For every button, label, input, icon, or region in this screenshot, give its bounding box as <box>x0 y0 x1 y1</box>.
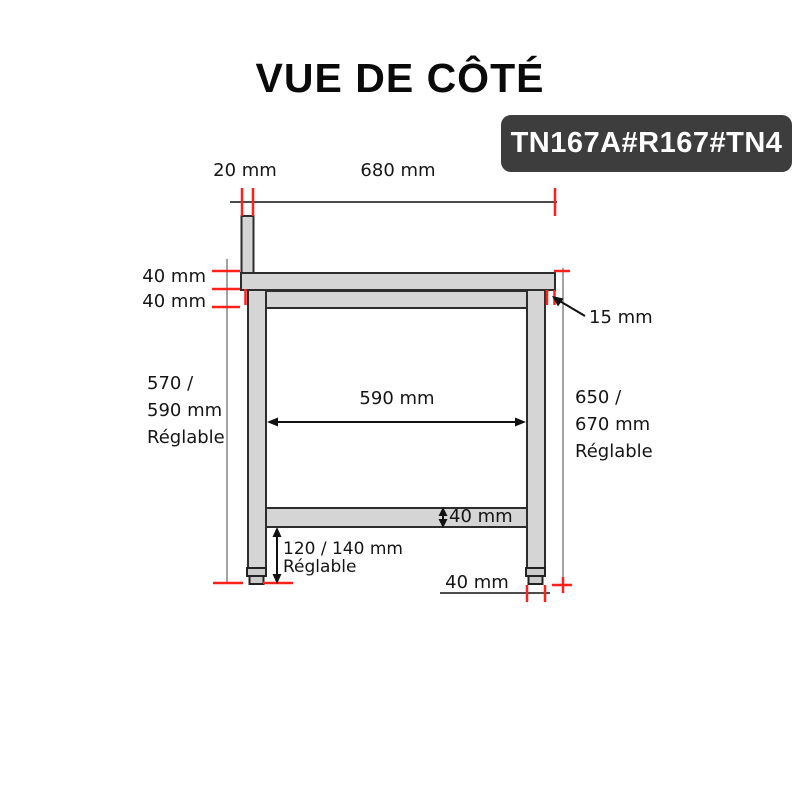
label-right-height-line1: 650 / <box>575 384 653 411</box>
inner-width-arrowhead-left <box>267 418 278 427</box>
left-leg-shape <box>248 290 266 568</box>
diagram-page: VUE DE CÔTÉ TN167A#R167#TN4 <box>0 0 800 800</box>
right-foot-collar-shape <box>526 568 545 576</box>
label-left-clearance-line2: 590 mm <box>147 397 225 424</box>
overhang-leader-line <box>558 300 585 316</box>
foot-height-arrowhead-up <box>273 527 282 537</box>
left-foot-pad-shape <box>250 576 264 584</box>
label-frame-height: 40 mm <box>138 291 206 313</box>
label-edge-overhang: 15 mm <box>589 307 653 329</box>
label-foot-width: 40 mm <box>437 572 517 594</box>
backsplash-shape <box>242 216 254 275</box>
left-foot-collar-shape <box>247 568 266 576</box>
label-foot-height: 120 / 140 mm Réglable <box>283 540 403 576</box>
label-left-clearance: 570 / 590 mm Réglable <box>147 370 225 451</box>
right-leg-shape <box>527 290 545 568</box>
label-foot-height-line1: 120 / 140 mm <box>283 540 403 558</box>
label-top-depth: 680 mm <box>356 160 440 182</box>
label-left-clearance-line3: Réglable <box>147 424 225 451</box>
label-right-height-line2: 670 mm <box>575 411 653 438</box>
underframe-shape <box>266 291 528 308</box>
label-foot-height-line2: Réglable <box>283 558 403 576</box>
inner-width-arrowhead-right <box>515 418 526 427</box>
label-top-thickness: 40 mm <box>138 266 206 288</box>
label-inner-width: 590 mm <box>354 388 440 410</box>
label-left-clearance-line1: 570 / <box>147 370 225 397</box>
tabletop-shape <box>241 273 555 290</box>
label-shelf-thickness: 40 mm <box>449 506 513 528</box>
label-right-height: 650 / 670 mm Réglable <box>575 384 653 465</box>
label-right-height-line3: Réglable <box>575 438 653 465</box>
right-foot-pad-shape <box>529 576 543 584</box>
label-backsplash-width: 20 mm <box>203 160 287 182</box>
